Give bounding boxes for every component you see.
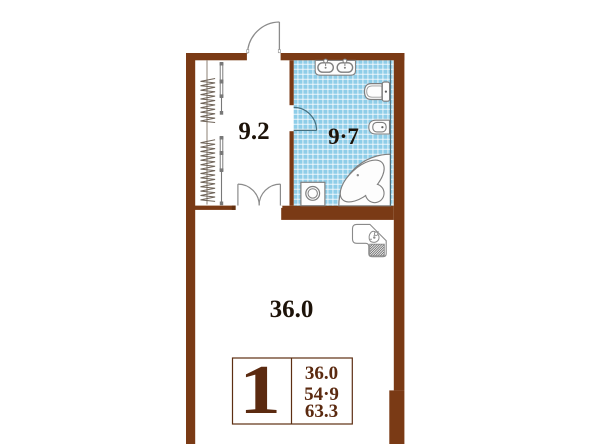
svg-text:36.0: 36.0	[270, 296, 314, 323]
svg-text:9.2: 9.2	[238, 118, 269, 145]
svg-text:9·7: 9·7	[328, 124, 359, 149]
svg-text:36.0: 36.0	[305, 363, 338, 384]
svg-text:1: 1	[239, 350, 281, 429]
svg-text:63.3: 63.3	[305, 401, 338, 422]
